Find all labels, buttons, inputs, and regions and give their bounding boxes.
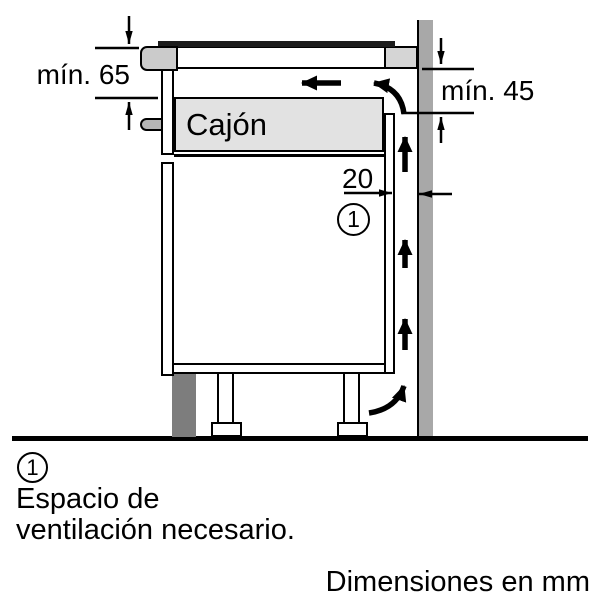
drawer-handle — [140, 118, 163, 131]
cabinet-plinth — [172, 374, 196, 437]
hob-front-profile — [140, 46, 178, 71]
units-note: Dimensiones en mm — [300, 566, 590, 599]
hob-glass-surface — [158, 41, 395, 47]
dim-label-gap20: 20 — [342, 163, 373, 195]
wall — [417, 20, 433, 437]
drawer-box: Cajón — [174, 97, 384, 152]
cabinet-foot-front — [211, 422, 242, 437]
legend-note-line2: ventilación necesario. — [16, 515, 295, 546]
installation-diagram: Cajón mín. 65 mí — [0, 0, 600, 600]
cabinet-leg-rear — [343, 372, 360, 424]
airflow-arrow-curve-bottom — [369, 386, 404, 413]
cabinet-foot-rear — [337, 422, 368, 437]
dim-label-min45: mín. 45 — [441, 75, 534, 107]
floor-line — [12, 436, 588, 441]
cabinet-back-panel — [384, 113, 395, 374]
legend-callout-1: 1 — [17, 452, 48, 483]
legend-note-line1: Espacio de — [16, 484, 295, 515]
drawer-front-panel — [161, 69, 174, 155]
legend-note: Espacio de ventilación necesario. — [16, 484, 295, 546]
callout-1-marker: 1 — [337, 203, 370, 236]
drawer-label: Cajón — [186, 107, 267, 143]
drawer-bottom-divider — [174, 154, 384, 157]
legend-callout-number: 1 — [26, 455, 38, 481]
countertop — [163, 46, 417, 69]
callout-1-number: 1 — [347, 206, 360, 233]
countertop-rear-block — [384, 48, 416, 67]
cabinet-bottom-panel — [161, 363, 395, 374]
dim-label-min65: mín. 65 — [30, 59, 130, 91]
cabinet-door-panel — [161, 162, 174, 376]
cabinet-leg-front — [217, 372, 234, 424]
